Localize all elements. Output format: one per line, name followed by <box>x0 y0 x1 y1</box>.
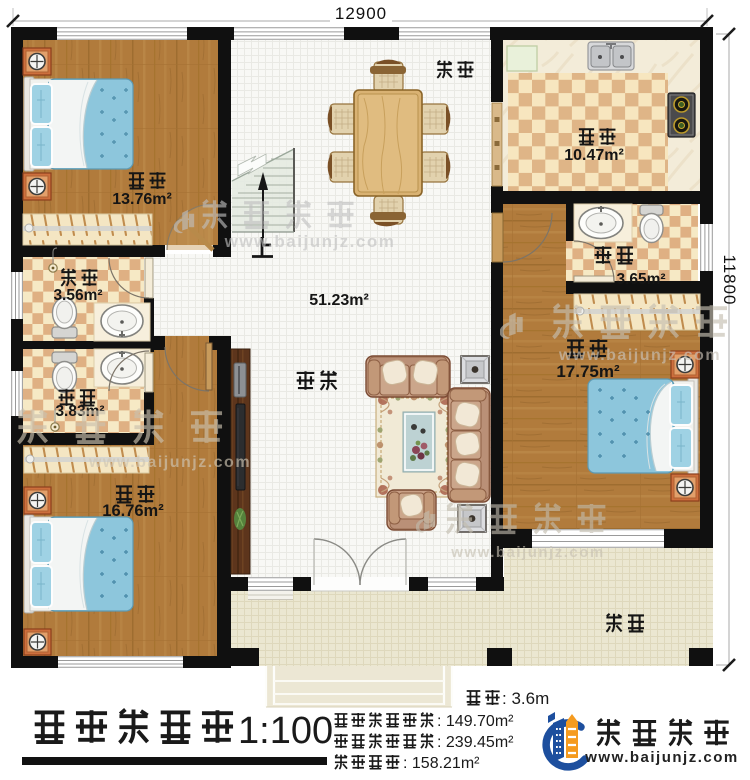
svg-text:: 149.70m²: : 149.70m² <box>437 713 514 730</box>
svg-text:51.23m²: 51.23m² <box>309 292 369 309</box>
svg-text:3.65m²: 3.65m² <box>616 271 665 288</box>
svg-text:11800: 11800 <box>720 254 739 305</box>
svg-text:: 3.6m: : 3.6m <box>502 689 549 708</box>
svg-text:www.baijunjz.com: www.baijunjz.com <box>450 544 604 561</box>
svg-text:: 158.21m²: : 158.21m² <box>403 755 480 772</box>
svg-text:www.baijunjz.com: www.baijunjz.com <box>88 454 251 471</box>
svg-text:13.76m²: 13.76m² <box>112 191 172 208</box>
svg-text:www.baijunjz.com: www.baijunjz.com <box>558 347 721 364</box>
svg-text:10.47m²: 10.47m² <box>564 147 624 164</box>
svg-text:17.75m²: 17.75m² <box>556 362 620 381</box>
svg-text:www.baijunjz.com: www.baijunjz.com <box>584 749 738 766</box>
svg-text:12900: 12900 <box>335 4 387 23</box>
svg-text:: 239.45m²: : 239.45m² <box>437 734 514 751</box>
svg-text:16.76m²: 16.76m² <box>102 502 164 520</box>
svg-text:1:100: 1:100 <box>238 710 333 752</box>
svg-text:www.baijunjz.com: www.baijunjz.com <box>224 232 396 251</box>
svg-text:3.56m²: 3.56m² <box>53 287 102 304</box>
